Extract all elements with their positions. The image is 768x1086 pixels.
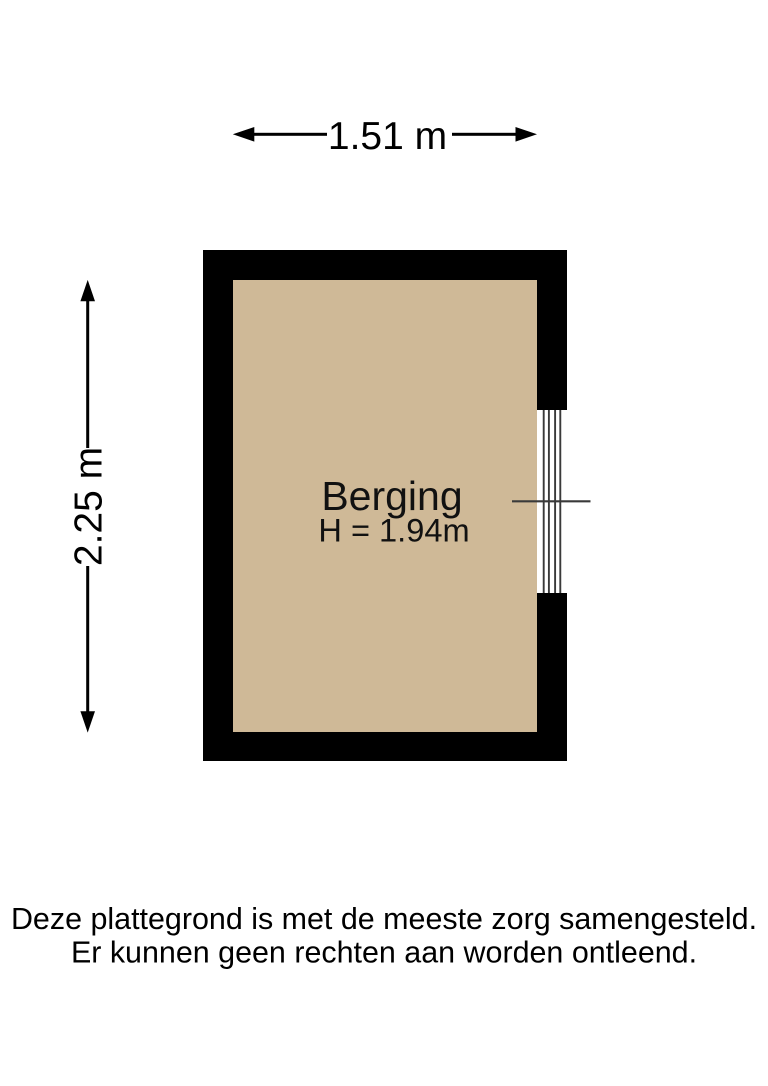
svg-text:H = 1.94m: H = 1.94m	[318, 512, 469, 549]
svg-text:Er kunnen geen rechten aan wor: Er kunnen geen rechten aan worden ontlee…	[71, 936, 697, 970]
svg-text:Deze plattegrond is met de mee: Deze plattegrond is met de meeste zorg s…	[11, 902, 757, 936]
svg-text:2.25 m: 2.25 m	[68, 447, 111, 566]
svg-text:1.51 m: 1.51 m	[328, 115, 447, 158]
